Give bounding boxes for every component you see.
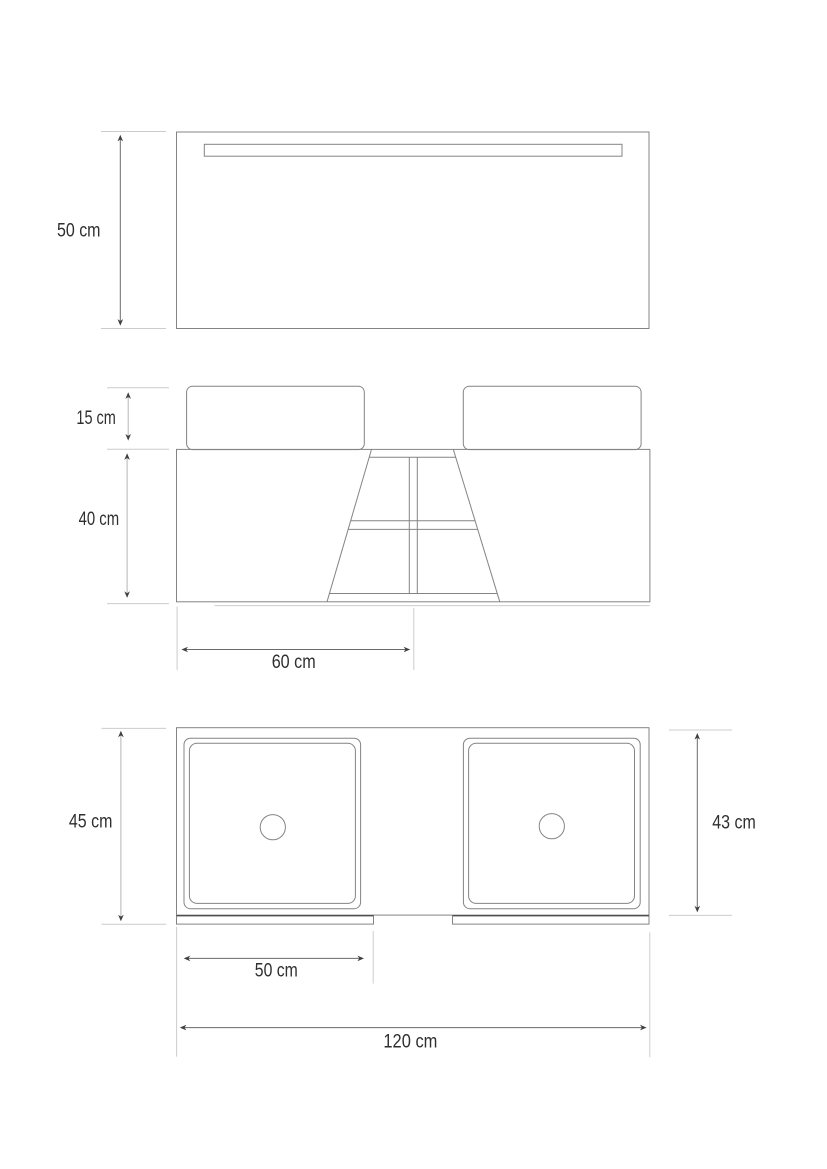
svg-text:50 cm: 50 cm [255,961,298,982]
svg-text:50 cm: 50 cm [57,221,101,242]
svg-text:15 cm: 15 cm [76,408,116,429]
svg-text:40 cm: 40 cm [79,509,120,530]
svg-text:45 cm: 45 cm [69,811,113,832]
svg-text:60 cm: 60 cm [272,652,316,673]
svg-text:43 cm: 43 cm [712,812,756,833]
svg-text:120 cm: 120 cm [383,1032,437,1053]
